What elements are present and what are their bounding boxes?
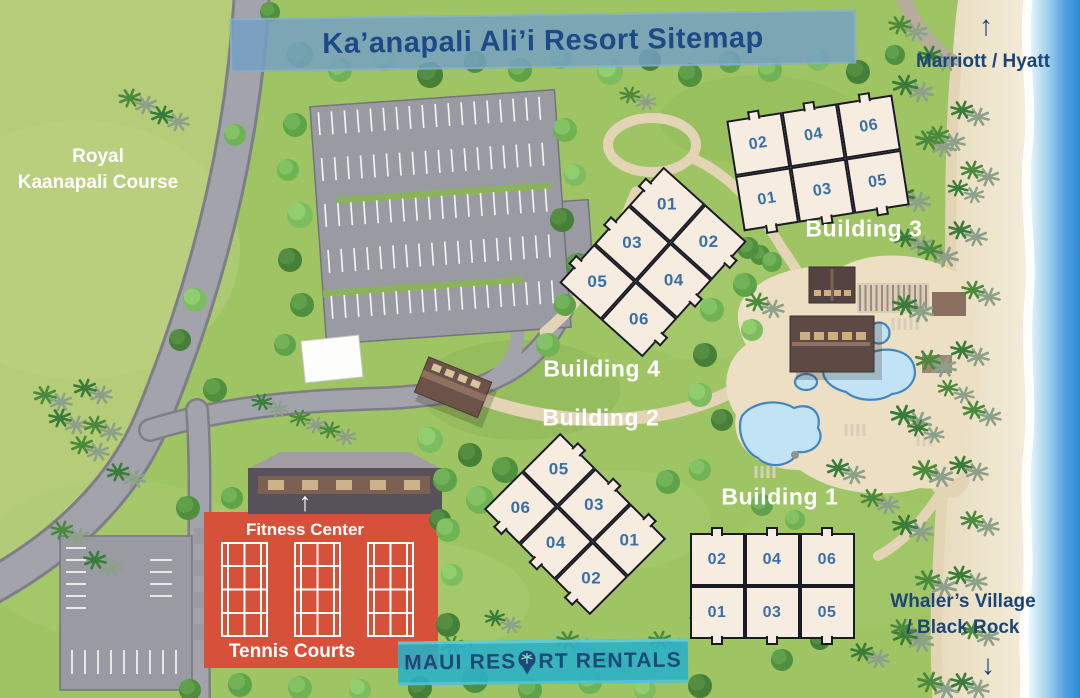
tree xyxy=(688,383,712,407)
tree xyxy=(700,298,724,322)
tree xyxy=(169,329,191,351)
fitness-center-label: Fitness Center xyxy=(246,520,364,540)
unit-number: 03 xyxy=(622,233,642,253)
building-3-unit-05: 05 xyxy=(846,150,910,214)
building-4-label: Building 4 xyxy=(543,356,660,383)
tree xyxy=(656,470,680,494)
golf-label-line1: Royal xyxy=(72,146,124,168)
unit-number: 02 xyxy=(699,232,719,252)
unit-number: 02 xyxy=(748,134,769,155)
tennis-court xyxy=(222,543,267,636)
building-3: 020406010305 xyxy=(726,95,909,232)
resort-sitemap: 020406010305Building 1060504030201Buildi… xyxy=(0,0,1080,698)
tree xyxy=(274,334,296,356)
balcony-notch xyxy=(858,92,871,103)
tree xyxy=(458,443,482,467)
unit-number: 03 xyxy=(812,180,833,201)
tree xyxy=(287,202,313,228)
tree xyxy=(688,674,712,698)
logo-text-part1: Maui Res xyxy=(404,650,517,675)
tree xyxy=(221,487,243,509)
whalers-village-label: Whaler’s Village xyxy=(890,591,1035,613)
tennis-court xyxy=(368,543,413,636)
logo-banner: Maui Res rt Rentals xyxy=(398,638,688,685)
tree xyxy=(785,510,805,530)
balcony-notch xyxy=(821,636,833,645)
tree xyxy=(441,564,463,586)
unit-number: 05 xyxy=(587,272,607,292)
building-1-unit-06: 06 xyxy=(800,533,855,586)
white-building xyxy=(301,335,363,383)
building-1-unit-01: 01 xyxy=(690,586,745,639)
building-1-unit-04: 04 xyxy=(745,533,800,586)
unit-number: 04 xyxy=(546,533,566,553)
small-parking-lot xyxy=(60,536,192,690)
unit-number: 05 xyxy=(549,460,569,480)
black-rock-label: / Black Rock xyxy=(907,617,1020,639)
logo-text-part2: rt Rentals xyxy=(538,649,682,675)
tree xyxy=(290,293,314,317)
tennis-courts-label: Tennis Courts xyxy=(229,641,355,663)
tree xyxy=(550,208,574,232)
golf-label-line2: Kaanapali Course xyxy=(18,172,179,194)
tree xyxy=(771,649,793,671)
tree xyxy=(278,248,302,272)
tree xyxy=(436,613,460,637)
building-3-label: Building 3 xyxy=(805,216,922,243)
balcony-notch xyxy=(802,101,815,112)
tree xyxy=(417,427,443,453)
down-arrow-icon: ↓ xyxy=(981,649,995,681)
building-3-unit-04: 04 xyxy=(782,103,846,167)
tree xyxy=(693,343,717,367)
tree xyxy=(711,409,733,431)
unit-number: 05 xyxy=(818,604,837,622)
deck xyxy=(932,292,966,316)
tree xyxy=(885,45,905,65)
unit-number: 06 xyxy=(629,309,649,329)
unit-number: 01 xyxy=(619,530,639,550)
building-3-unit-03: 03 xyxy=(790,159,854,223)
unit-number: 05 xyxy=(867,172,888,193)
tree xyxy=(678,63,702,87)
unit-number: 03 xyxy=(584,495,604,515)
unit-number: 04 xyxy=(664,271,684,291)
unit-number: 01 xyxy=(756,189,777,210)
tree xyxy=(536,333,560,357)
tennis-court xyxy=(295,543,340,636)
unit-number: 01 xyxy=(657,195,677,215)
balcony-notch xyxy=(821,527,833,536)
title-banner: Ka’anapali Ali’i Resort Sitemap xyxy=(230,10,857,73)
tree xyxy=(762,252,782,272)
tree xyxy=(183,288,207,312)
south-road xyxy=(197,410,200,698)
unit-number: 06 xyxy=(818,551,837,569)
building-1-unit-03: 03 xyxy=(745,586,800,639)
tree xyxy=(176,496,200,520)
unit-number: 02 xyxy=(581,568,601,588)
unit-number: 01 xyxy=(708,604,727,622)
tree xyxy=(277,159,299,181)
tree xyxy=(689,459,711,481)
tree xyxy=(436,518,460,542)
building-1-label: Building 1 xyxy=(721,484,838,511)
unit-number: 04 xyxy=(763,551,782,569)
tree xyxy=(733,273,757,297)
unit-number: 04 xyxy=(803,125,824,146)
tree xyxy=(228,673,252,697)
building-2-label: Building 2 xyxy=(542,405,659,432)
balcony-notch xyxy=(747,110,760,121)
unit-number: 06 xyxy=(511,498,531,518)
tree xyxy=(553,118,577,142)
building-3-unit-06: 06 xyxy=(837,95,901,159)
unit-number: 02 xyxy=(708,551,727,569)
tree xyxy=(433,468,457,492)
balcony-notch xyxy=(711,636,723,645)
marriott-hyatt-label: Marriott / Hyatt xyxy=(916,51,1050,73)
tree xyxy=(224,124,246,146)
balcony-notch xyxy=(766,636,778,645)
balcony-notch xyxy=(766,527,778,536)
tree xyxy=(564,164,586,186)
tree xyxy=(203,378,227,402)
unit-number: 06 xyxy=(858,116,879,137)
fitness-arrow-icon: ↑ xyxy=(299,487,312,518)
building-3-unit-01: 01 xyxy=(735,167,799,231)
building-3-unit-02: 02 xyxy=(726,112,790,176)
fitness-center-building xyxy=(246,452,443,514)
balcony-notch xyxy=(711,527,723,536)
tree xyxy=(554,294,576,316)
balcony-notch xyxy=(765,223,778,234)
tree xyxy=(741,319,763,341)
tree xyxy=(288,676,312,698)
tree xyxy=(349,679,371,698)
building-1-unit-05: 05 xyxy=(800,586,855,639)
up-arrow-icon: ↑ xyxy=(979,10,993,42)
palm-pin-icon xyxy=(518,650,536,675)
page-title: Ka’anapali Ali’i Resort Sitemap xyxy=(322,21,764,60)
building-1: 020406010305 xyxy=(690,533,855,639)
tree xyxy=(283,113,307,137)
building-1-unit-02: 02 xyxy=(690,533,745,586)
unit-number: 03 xyxy=(763,604,782,622)
